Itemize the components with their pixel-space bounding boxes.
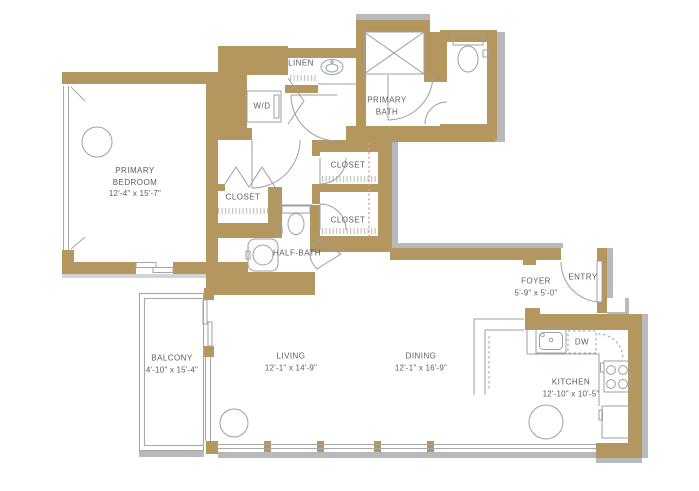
label-entry: ENTRY xyxy=(568,271,597,283)
label-dining: DINING 12'-1" x 16'-9" xyxy=(395,351,447,374)
label-primary-bedroom: PRIMARY BEDROOM 12'-4" x 15'-7" xyxy=(109,165,161,200)
bedroom-door xyxy=(252,140,300,188)
shower xyxy=(364,32,424,74)
south-window xyxy=(218,445,596,449)
label-kitchen: KITCHEN 12'-10" x 10'-5" xyxy=(543,377,600,400)
kitchen-sink xyxy=(536,329,566,353)
label-wd: W/D xyxy=(254,100,271,112)
window-corner-marks xyxy=(71,87,85,249)
column xyxy=(220,409,248,437)
label-linen: LINEN xyxy=(288,57,314,69)
label-half-bath: HALF-BATH xyxy=(273,247,321,259)
bifold-door xyxy=(223,167,275,187)
door-swings xyxy=(252,75,602,302)
living-window xyxy=(206,357,211,441)
bedroom-balcony-door-panel xyxy=(136,263,156,268)
bath-vanity-sink xyxy=(318,60,356,85)
label-closet-hall-upper: CLOSET xyxy=(331,159,366,171)
bath-door xyxy=(291,95,337,141)
label-balcony: BALCONY 4'-10" x 15'-4" xyxy=(146,353,198,376)
entry-door-leaf xyxy=(597,261,602,302)
label-primary-bath: PRIMARY BATH xyxy=(367,95,406,118)
label-dishwasher: DW xyxy=(575,336,589,348)
balcony-slider-panel xyxy=(208,322,212,346)
floor-plan-drawing xyxy=(0,0,699,491)
label-closet-hall-lower: CLOSET xyxy=(331,214,366,226)
refrigerator xyxy=(599,406,630,438)
label-foyer: FOYER 5'-9" x 5'-0" xyxy=(515,276,558,299)
kitchen-table xyxy=(529,405,563,439)
label-closet-bedroom: CLOSET xyxy=(226,191,261,203)
label-living: LIVING 12'-1" x 14'-9" xyxy=(265,351,317,374)
bedroom-balcony-door-panel xyxy=(153,268,173,273)
column xyxy=(82,127,112,157)
floor-plan: PRIMARY BEDROOM 12'-4" x 15'-7" W/D LINE… xyxy=(0,0,699,491)
wc-door xyxy=(425,102,447,124)
bedroom-window xyxy=(64,86,69,250)
stove xyxy=(601,361,631,392)
